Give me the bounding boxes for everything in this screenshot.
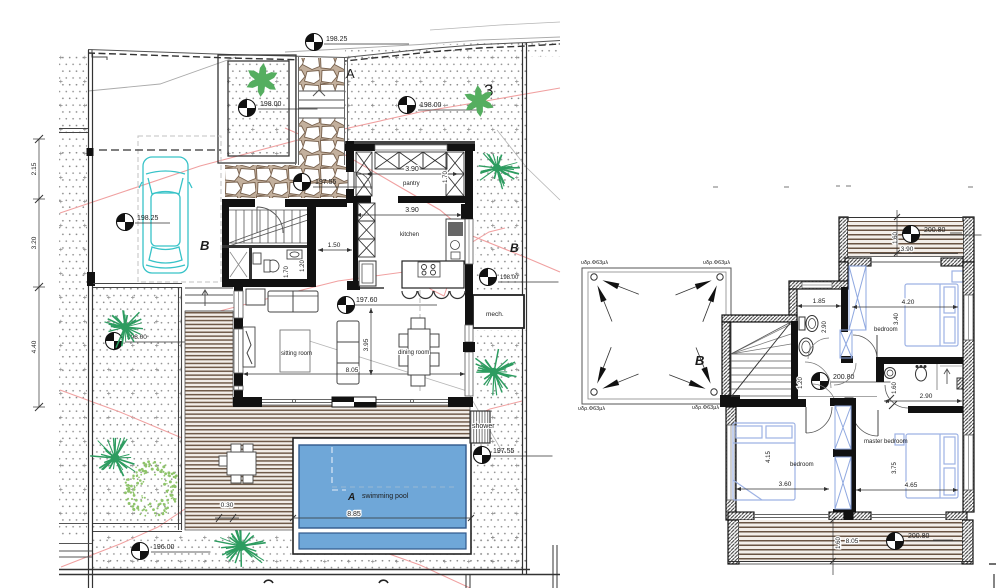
svg-text:A: A <box>347 492 355 503</box>
svg-text:1.60: 1.60 <box>892 382 898 394</box>
svg-text:197.55: 197.55 <box>315 179 337 186</box>
svg-text:swimming pool: swimming pool <box>362 493 409 500</box>
svg-text:B: B <box>200 238 209 253</box>
svg-text:bedroom: bedroom <box>790 462 814 468</box>
svg-text:3.40: 3.40 <box>894 313 900 325</box>
svg-text:197.55: 197.55 <box>493 448 515 455</box>
svg-text:3.90: 3.90 <box>405 166 419 173</box>
svg-text:1.60: 1.60 <box>836 537 842 549</box>
svg-text:1.20: 1.20 <box>300 260 306 272</box>
svg-text:3.60: 3.60 <box>779 481 792 488</box>
svg-text:200.80: 200.80 <box>924 227 946 234</box>
svg-text:3.90: 3.90 <box>901 246 914 253</box>
svg-text:198.00: 198.00 <box>260 101 282 108</box>
svg-text:kitchen: kitchen <box>400 232 419 238</box>
svg-text:4.15: 4.15 <box>766 451 772 463</box>
svg-text:2.15: 2.15 <box>31 162 38 175</box>
svg-text:master bedroom: master bedroom <box>864 439 908 445</box>
svg-text:0.30: 0.30 <box>221 502 234 509</box>
svg-text:3.90: 3.90 <box>405 207 419 214</box>
svg-text:4.40: 4.40 <box>31 340 38 353</box>
svg-text:1.20: 1.20 <box>798 377 804 389</box>
svg-text:B: B <box>510 241 519 255</box>
svg-text:υδρ.Φ63μλ: υδρ.Φ63μλ <box>581 260 608 266</box>
svg-text:198.00: 198.00 <box>420 102 442 109</box>
svg-text:8.05: 8.05 <box>346 367 359 374</box>
svg-text:8.85: 8.85 <box>347 511 361 518</box>
svg-text:196.00: 196.00 <box>153 544 175 551</box>
svg-text:8.05: 8.05 <box>846 538 859 545</box>
svg-text:3.20: 3.20 <box>31 236 38 249</box>
svg-text:198.00: 198.00 <box>500 275 519 281</box>
svg-text:3.75: 3.75 <box>892 462 898 474</box>
svg-text:1.60: 1.60 <box>893 232 899 244</box>
svg-text:1.70: 1.70 <box>284 266 290 278</box>
svg-text:1.50: 1.50 <box>328 242 341 249</box>
svg-text:sitting room: sitting room <box>281 351 312 357</box>
svg-text:200.80: 200.80 <box>908 533 930 540</box>
svg-text:1.70: 1.70 <box>443 171 449 183</box>
svg-text:197.60: 197.60 <box>356 297 378 304</box>
svg-text:A: A <box>346 66 355 81</box>
svg-text:shower: shower <box>472 423 495 430</box>
svg-text:pantry: pantry <box>403 181 420 187</box>
svg-text:2.90: 2.90 <box>920 393 933 400</box>
svg-text:B: B <box>695 353 704 368</box>
svg-text:198.25: 198.25 <box>326 36 348 43</box>
svg-text:200.80: 200.80 <box>833 374 855 381</box>
svg-text:198.25: 198.25 <box>137 215 159 222</box>
svg-text:1.85: 1.85 <box>813 298 826 305</box>
svg-text:4.65: 4.65 <box>905 482 918 489</box>
svg-text:3.95: 3.95 <box>363 338 370 351</box>
svg-text:υδρ.Φ63μλ: υδρ.Φ63μλ <box>703 260 730 266</box>
svg-text:bedroom: bedroom <box>874 327 898 333</box>
svg-text:mech.: mech. <box>486 311 504 318</box>
svg-text:2.90: 2.90 <box>822 321 828 333</box>
svg-text:υδρ.Φ63μλ: υδρ.Φ63μλ <box>578 406 605 412</box>
svg-text:dining room: dining room <box>398 350 429 356</box>
svg-text:4.20: 4.20 <box>902 299 915 306</box>
svg-text:υδρ.Φ63μλ: υδρ.Φ63μλ <box>692 405 719 411</box>
